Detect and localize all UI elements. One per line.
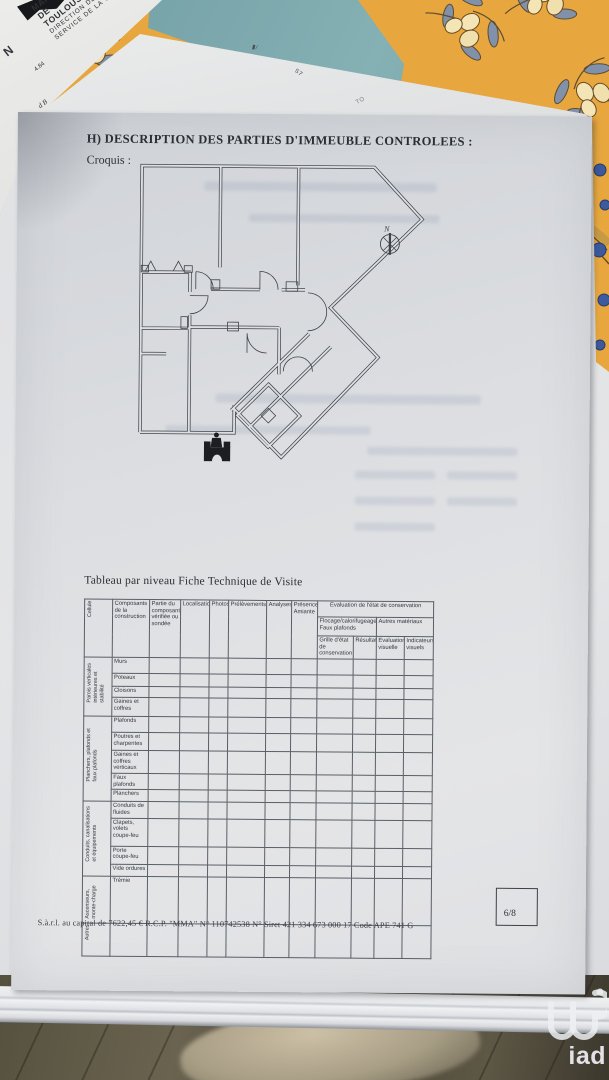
empty-cell — [317, 688, 353, 699]
empty-cell — [265, 751, 290, 774]
empty-cell — [179, 846, 208, 864]
empty-cell — [317, 699, 353, 718]
group-cell: Ascenseurs, monte-charge — [82, 876, 110, 923]
iad-logo-text: iad — [560, 1042, 606, 1071]
empty-cell — [316, 752, 352, 775]
component-cell: Planchers — [111, 790, 148, 802]
empty-cell — [208, 774, 227, 790]
empty-cell — [149, 717, 180, 733]
empty-cell — [375, 820, 403, 848]
empty-cell — [227, 865, 265, 877]
empty-cell — [374, 866, 402, 878]
empty-cell — [403, 820, 432, 848]
empty-cell — [179, 774, 208, 791]
header-localisation: Localisation — [180, 600, 209, 658]
empty-cell — [374, 878, 402, 925]
empty-cell — [403, 804, 432, 821]
empty-cell — [317, 718, 353, 734]
empty-cell — [403, 753, 432, 776]
component-cell: Poteaux — [112, 673, 149, 686]
empty-cell — [402, 866, 431, 878]
table-row: Gaines et coffres verticaux — [83, 750, 432, 776]
empty-cell — [209, 717, 228, 733]
letterhead-n-mark: N — [1, 43, 16, 59]
empty-cell — [290, 819, 316, 847]
empty-cell — [404, 719, 433, 735]
compass-north-label: N — [383, 225, 390, 234]
empty-cell — [148, 818, 179, 846]
empty-cell — [207, 877, 226, 924]
empty-cell — [317, 659, 353, 675]
component-cell: Clapets, volets coupe-feu — [111, 818, 148, 846]
empty-cell — [376, 718, 404, 734]
empty-cell — [266, 687, 291, 698]
empty-cell — [352, 752, 375, 775]
group-label: Parois verticales intérieures et stabili… — [86, 659, 106, 703]
empty-cell — [209, 687, 228, 698]
empty-cell — [353, 718, 376, 734]
empty-cell — [316, 803, 352, 820]
empty-cell — [375, 775, 403, 792]
header-autres-materiaux: Autres matériaux — [376, 617, 433, 636]
empty-cell — [227, 751, 265, 774]
empty-cell — [147, 876, 178, 923]
empty-cell — [266, 658, 291, 674]
header-prelevements: Prélèvements — [228, 600, 266, 658]
empty-cell — [376, 699, 404, 718]
empty-cell — [352, 848, 375, 866]
group-label: Planchers, plafonds et faux plafonds — [85, 718, 98, 782]
empty-cell — [352, 791, 375, 803]
header-flocage: Flocage/calorifugeage Faux plafonds — [317, 617, 376, 636]
empty-cell — [227, 819, 265, 847]
empty-cell — [315, 877, 351, 924]
empty-cell — [208, 790, 227, 802]
component-cell: Murs — [112, 657, 149, 673]
empty-cell — [264, 865, 289, 877]
empty-cell — [179, 802, 208, 819]
empty-cell — [352, 820, 375, 848]
empty-cell — [265, 847, 290, 865]
empty-cell — [353, 699, 376, 718]
empty-cell — [209, 658, 228, 674]
empty-cell — [227, 790, 265, 802]
empty-cell — [148, 733, 179, 751]
group-cell: Parois verticales intérieures et stabili… — [84, 657, 112, 716]
empty-cell — [316, 819, 352, 847]
empty-cell — [179, 864, 208, 876]
header-cellule: Cellule — [84, 599, 112, 657]
empty-cell — [375, 804, 403, 821]
document-page: H) DESCRIPTION DES PARTIES D'IMMEUBLE CO… — [11, 112, 592, 994]
empty-cell — [227, 847, 265, 865]
table-row: Clapets, volets coupe-feu — [83, 818, 432, 849]
empty-cell — [376, 659, 404, 675]
empty-cell — [351, 878, 374, 925]
empty-cell — [266, 674, 291, 687]
empty-cell — [375, 792, 403, 804]
empty-cell — [227, 774, 265, 791]
empty-cell — [148, 751, 179, 774]
empty-cell — [180, 717, 209, 733]
empty-cell — [208, 802, 227, 818]
empty-cell — [180, 698, 209, 717]
empty-cell — [179, 818, 208, 846]
empty-cell — [265, 803, 290, 820]
component-cell: Trémie — [110, 876, 147, 923]
empty-cell — [291, 718, 317, 734]
component-cell: Faux plafonds — [111, 773, 148, 790]
header-composants: Composants de la construction — [112, 599, 149, 657]
empty-cell — [228, 698, 266, 717]
empty-cell — [148, 846, 179, 864]
group-label: Ascenseurs, monte-charge — [84, 877, 97, 918]
empty-cell — [291, 675, 317, 688]
header-analyses: Analyses — [266, 600, 291, 658]
empty-cell — [375, 848, 403, 866]
empty-cell — [375, 752, 403, 775]
empty-cell — [404, 689, 433, 700]
empty-cell — [403, 776, 432, 793]
empty-cell — [208, 819, 227, 847]
empty-cell — [352, 734, 375, 752]
empty-cell — [149, 698, 180, 717]
header-resultat: Résultat — [353, 636, 376, 659]
group-cell: Planchers, plafonds et faux plafonds — [83, 716, 112, 801]
empty-cell — [179, 733, 208, 751]
empty-cell — [178, 876, 207, 923]
empty-cell — [316, 847, 352, 865]
component-cell: Cloisons — [112, 686, 149, 697]
component-cell: Porte coupe-feu — [111, 846, 148, 864]
empty-cell — [208, 865, 227, 877]
fiche-table-body: Parois verticales intérieures et stabili… — [82, 657, 433, 958]
empty-cell — [179, 751, 208, 774]
empty-cell — [265, 819, 290, 847]
empty-cell — [375, 734, 403, 752]
group-cell: Conduits, canalisations et équipements — [83, 801, 112, 876]
floor-plan: N — [124, 159, 529, 586]
component-cell: Gaines et coffres — [112, 697, 149, 716]
empty-cell — [352, 803, 375, 819]
empty-cell — [403, 848, 432, 866]
empty-cell — [290, 775, 316, 792]
component-cell: Vide ordures — [111, 864, 148, 876]
empty-cell — [209, 674, 228, 687]
empty-cell — [290, 734, 316, 752]
empty-cell — [209, 698, 228, 717]
empty-cell — [353, 659, 376, 675]
empty-cell — [289, 877, 315, 924]
empty-cell — [316, 791, 352, 803]
empty-cell — [291, 699, 317, 718]
empty-cell — [290, 847, 316, 865]
empty-cell — [376, 688, 404, 699]
empty-cell — [404, 676, 433, 689]
empty-cell — [403, 792, 432, 804]
empty-cell — [266, 717, 291, 733]
iad-logo-icon — [543, 988, 607, 1044]
component-cell: Poutres et charpentes — [111, 732, 148, 750]
letterhead-number-fragment: 4.84 — [33, 61, 46, 73]
header-eval-visuelle: Evaluation visuelle — [376, 636, 404, 659]
header-indicateurs: Indicateurs visuels — [404, 637, 433, 660]
empty-cell — [290, 791, 316, 803]
component-cell: Gaines et coffres verticaux — [111, 750, 148, 773]
empty-cell — [402, 878, 431, 925]
empty-cell — [315, 865, 351, 877]
empty-cell — [208, 751, 227, 774]
empty-cell — [226, 877, 264, 924]
empty-cell — [208, 733, 227, 751]
croquis-label: Croquis : — [87, 153, 131, 168]
component-cell: Plafonds — [112, 716, 149, 732]
empty-cell — [179, 790, 208, 802]
empty-cell — [149, 674, 180, 687]
empty-cell — [290, 803, 316, 820]
page-number-box: 6/8 — [496, 888, 538, 926]
empty-cell — [148, 802, 179, 819]
empty-cell — [353, 688, 376, 699]
header-partie: Partie du composant vérifiée ou sondée — [149, 600, 180, 658]
header-presence-amiante: Présence Amiante — [291, 601, 317, 659]
group-label: Conduits, canalisations et équipements — [85, 803, 98, 862]
empty-cell — [180, 658, 209, 674]
empty-cell — [291, 659, 317, 675]
empty-cell — [227, 802, 265, 819]
empty-cell — [264, 877, 289, 924]
header-grille: Grille d'état de conservation — [317, 636, 353, 659]
empty-cell — [266, 698, 291, 717]
table-row: Ascenseurs, monte-chargeTrémie — [82, 876, 431, 926]
photo-scene: ▮/ S7 TO MAIRIE DE TOULOUSE DIRECTION DE… — [0, 0, 609, 1080]
empty-cell — [351, 866, 374, 878]
empty-cell — [180, 687, 209, 698]
empty-cell — [148, 774, 179, 791]
table-title: Tableau par niveau Fiche Technique de Vi… — [84, 575, 302, 589]
empty-cell — [404, 700, 433, 719]
empty-cell — [227, 733, 265, 751]
empty-cell — [404, 660, 433, 676]
empty-cell — [291, 688, 317, 699]
empty-cell — [149, 687, 180, 698]
fiche-technique-table: Cellule Composants de la construction Pa… — [81, 599, 434, 959]
empty-cell — [149, 658, 180, 674]
empty-cell — [290, 752, 316, 775]
empty-cell — [228, 717, 266, 733]
empty-cell — [148, 790, 179, 802]
empty-cell — [316, 734, 352, 752]
component-cell: Conduits de fluides — [111, 802, 148, 819]
empty-cell — [265, 774, 290, 791]
empty-cell — [289, 865, 315, 877]
empty-cell — [353, 675, 376, 688]
empty-cell — [228, 687, 266, 698]
empty-cell — [148, 864, 179, 876]
empty-cell — [228, 674, 266, 687]
empty-cell — [403, 735, 432, 753]
empty-cell — [376, 675, 404, 688]
page-number: 6/8 — [504, 909, 516, 919]
empty-cell — [180, 674, 209, 687]
empty-cell — [352, 775, 375, 791]
empty-cell — [265, 791, 290, 803]
empty-cell — [317, 675, 353, 688]
header-photos: Photos — [209, 600, 228, 658]
empty-cell — [208, 847, 227, 865]
empty-cell — [316, 775, 352, 792]
header-evaluation: Evaluation de l'état de conservation — [318, 601, 434, 618]
empty-cell — [228, 658, 266, 674]
empty-cell — [265, 733, 290, 751]
